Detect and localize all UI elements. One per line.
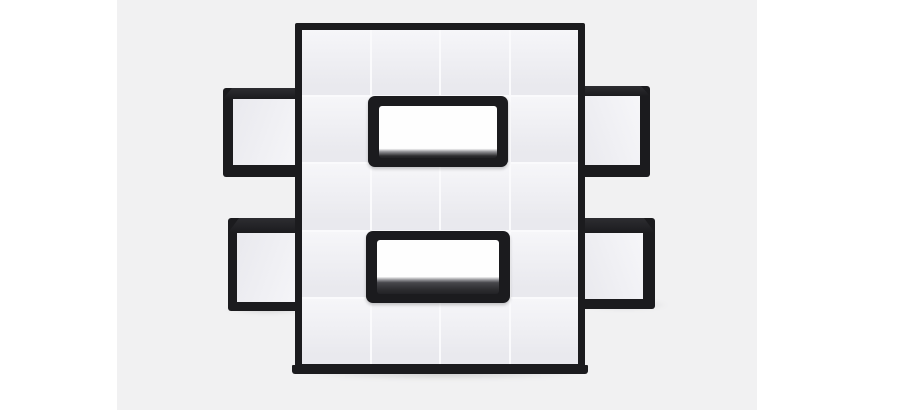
shelf-tile: [302, 232, 370, 297]
wing-top-face: [578, 86, 650, 96]
shelf-tile: [372, 299, 440, 364]
shelf-tile: [302, 30, 370, 95]
shelf-base: [292, 365, 588, 374]
shelf-tile: [441, 30, 509, 95]
shelf-wing-lower-right: [583, 218, 655, 309]
shelf-wing-upper-left: [223, 88, 302, 177]
shelf-tile: [302, 97, 370, 162]
shelf-tile: [302, 299, 370, 364]
wing-top-face: [223, 88, 302, 99]
wing-top-face: [228, 218, 305, 233]
shelf-tile: [511, 164, 579, 229]
shelf-tile: [302, 164, 370, 229]
shelf-tile: [372, 164, 440, 229]
niche-interior: [377, 240, 499, 294]
wing-top-face: [583, 218, 655, 233]
shelf-tile: [441, 299, 509, 364]
shelf-main-body: [295, 23, 585, 373]
niche-interior: [379, 106, 497, 158]
shelf-tile: [372, 30, 440, 95]
shelf-tile: [511, 299, 579, 364]
product-photo: [0, 0, 907, 410]
shelf-tile: [511, 232, 579, 297]
wing-front-panel: [233, 99, 302, 165]
wing-front-panel: [578, 96, 640, 165]
shelf-tile: [511, 97, 579, 162]
shelf-tile-grid: [302, 30, 578, 364]
photo-canvas: [117, 0, 757, 410]
shelf-wing-upper-right: [578, 86, 650, 177]
shelf-tile: [441, 164, 509, 229]
shelf-niche-upper: [368, 96, 508, 167]
shelf-niche-lower: [366, 231, 510, 303]
shelf-wing-lower-left: [228, 218, 305, 311]
wing-front-panel: [583, 233, 643, 299]
shelf-tile: [511, 30, 579, 95]
